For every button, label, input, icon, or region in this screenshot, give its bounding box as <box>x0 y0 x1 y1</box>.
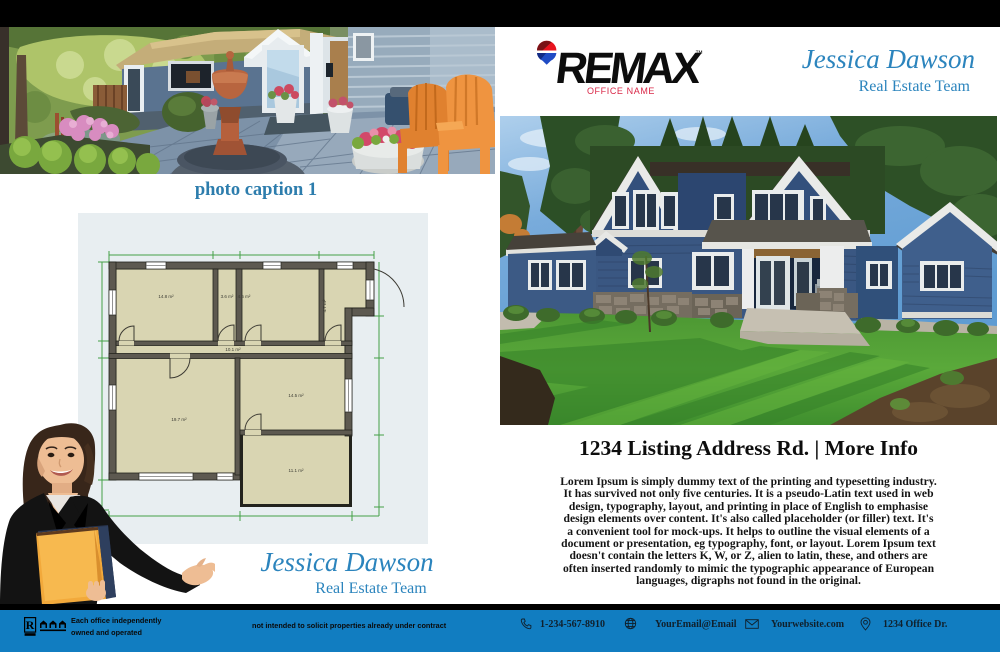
svg-text:R: R <box>26 618 35 632</box>
svg-text:OFFICE NAME: OFFICE NAME <box>587 86 655 96</box>
svg-text:4.7 m²: 4.7 m² <box>322 299 327 312</box>
svg-text:4.6 m²: 4.6 m² <box>238 294 251 299</box>
svg-text:14.5 m²: 14.5 m² <box>288 393 304 398</box>
svg-text:11.1 m²: 11.1 m² <box>289 468 304 473</box>
svg-text:19.7 m²: 19.7 m² <box>171 417 187 422</box>
svg-text:3.6 m²: 3.6 m² <box>221 294 234 299</box>
svg-text:10.1 m²: 10.1 m² <box>225 347 241 352</box>
svg-text:14.8 m²: 14.8 m² <box>158 294 174 299</box>
